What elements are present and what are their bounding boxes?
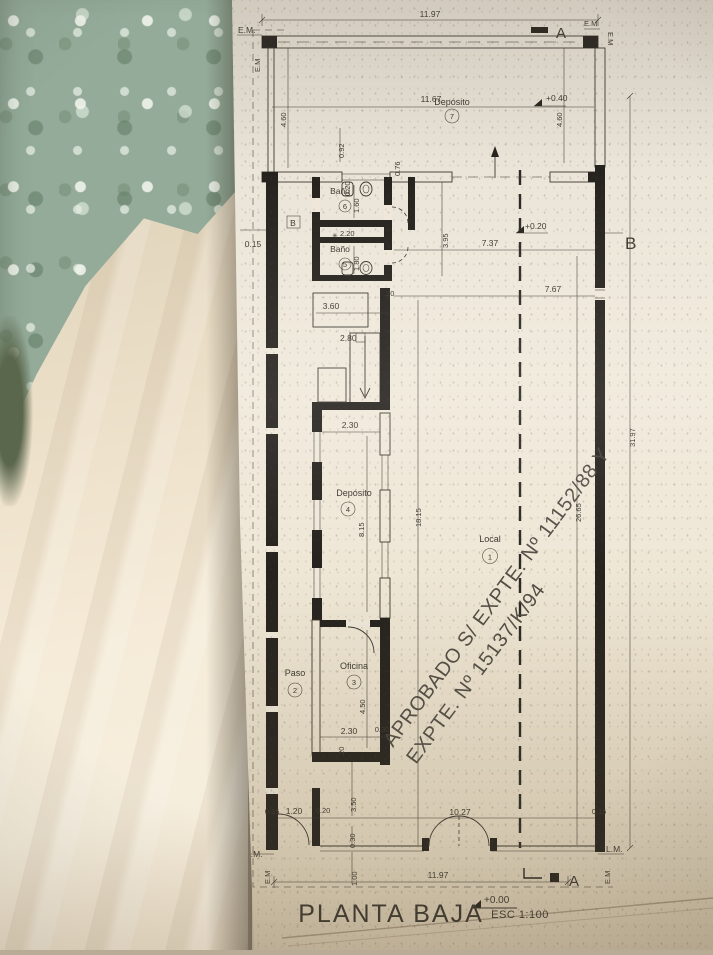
room-deposito7-label: Depósito <box>434 97 470 107</box>
dim-bano5-width: 1.80 <box>352 256 361 271</box>
dim-stair-run: 3.60 <box>323 301 340 311</box>
scale-label: ESC 1:100 <box>491 909 549 921</box>
dim-460-right: 4.60 <box>555 112 564 127</box>
dim-460-left: 4.60 <box>279 112 288 127</box>
dim-oficina-width: 2.30 <box>341 726 358 736</box>
floor-plan-drawing: E.M. E.M E.M E.M A 11.97 11.67 0.92 0.20… <box>226 0 713 950</box>
dim-jog-092: 0.92 <box>337 143 346 158</box>
right-wall-upper <box>595 48 605 167</box>
section-a-bottom-label: A <box>569 873 579 890</box>
room-deposito4-label: Depósito <box>336 488 372 498</box>
dim-local-width-mid: 7.67 <box>545 284 562 294</box>
dim-bano6-width: 1.60 <box>352 198 361 213</box>
dimension-lines <box>237 14 633 888</box>
dim-total-depth: 31.97 <box>628 428 637 447</box>
section-mark-a-top <box>531 27 548 33</box>
photograph: E.M. E.M E.M E.M A 11.97 11.67 0.92 0.20… <box>0 0 713 950</box>
dim-hall-076: 0.76 <box>393 161 402 176</box>
section-a-top-label: A <box>556 25 566 42</box>
dim-oficina-depth: 4.50 <box>358 699 367 714</box>
room-bano6-label: Baño <box>330 186 350 196</box>
corridor-inner-wall <box>312 410 322 755</box>
dim-deposito4-width: 2.30 <box>342 420 359 430</box>
oficina-walls <box>312 620 390 762</box>
dim-local-width-upper: 7.37 <box>482 238 499 248</box>
marker-em-bottom-left: E.M <box>263 871 272 884</box>
top-facade-wall <box>262 36 598 48</box>
room-paso2-label: Paso <box>285 668 306 678</box>
dim-local-depth: 18.15 <box>414 508 423 527</box>
level-zero-label: +0.00 <box>484 895 510 906</box>
paper-sheet: E.M. E.M E.M E.M A 11.97 11.67 0.92 0.20… <box>226 0 713 950</box>
dim-front-left-offset: 0.15 <box>265 807 280 816</box>
section-mark-a-bottom <box>524 868 559 882</box>
dim-front-wall: 0.30 <box>348 833 357 848</box>
background-dark-fold <box>0 316 34 506</box>
dim-left-offset: 0.15 <box>245 239 262 249</box>
section-b-right-label: B <box>625 234 636 253</box>
dim-shaft-220: 2.20 <box>340 229 355 238</box>
marker-em-top-right: E.M <box>584 19 597 28</box>
level-upper-label: +0.40 <box>546 93 568 103</box>
shaft-star-symbol: ✳ <box>332 232 338 240</box>
marker-em-bottom-right: E.M <box>603 871 612 884</box>
left-outer-wall <box>266 172 278 850</box>
direction-up-arrow <box>491 146 499 178</box>
dim-front-door: 1.20 <box>286 806 303 816</box>
dim-bano-depth: 3.95 <box>441 233 450 248</box>
room-local1-number: 1 <box>488 553 492 562</box>
room-deposito7-number: 7 <box>450 112 454 121</box>
room-local1-label: Local <box>479 534 501 544</box>
dim-stair-width: 2.80 <box>340 333 357 343</box>
approval-stamp: APROBADO S/ EXPTE. Nº 11152/88 Y EXPTE. … <box>379 444 614 768</box>
room-paso2-number: 2 <box>293 686 297 695</box>
marker-lm-right: L.M. <box>606 844 623 854</box>
room-oficina3-number: 3 <box>352 678 356 687</box>
dim-bottom-width: 11.97 <box>428 870 449 880</box>
right-outer-wall <box>595 165 605 852</box>
room-oficina3-label: Oficina <box>340 661 368 671</box>
plan-title: PLANTA BAJA <box>298 900 484 928</box>
lot-boundary-dashed <box>253 30 613 887</box>
room-bano6-number: 6 <box>343 202 347 211</box>
dim-wall-20-oficina: .20 <box>337 747 346 757</box>
dim-front-pier: 0.20 <box>316 806 331 815</box>
room-deposito4-number: 4 <box>346 505 350 514</box>
level-mid-label: +0.20 <box>525 221 547 231</box>
dim-front-right-offset: 0.15 <box>592 807 607 816</box>
room-bano5-number: 5 <box>343 260 347 269</box>
dim-wall-20-stair: .20 <box>384 289 394 298</box>
dim-deposito4-depth: 8.15 <box>357 522 366 537</box>
dim-top-width: 11.97 <box>420 9 441 19</box>
stamp-line1: APROBADO S/ EXPTE. Nº 11152/88 Y <box>379 444 614 751</box>
marker-em-top-left: E.M. <box>238 25 255 35</box>
marker-em-top-right-rotated: E.M <box>606 32 615 45</box>
dim-front-setback: 3.50 <box>349 797 358 812</box>
dim-front-opening: 10.27 <box>449 807 471 817</box>
partition-wall-local <box>380 413 390 765</box>
section-b-left-label: B <box>290 218 296 228</box>
left-wall-upper <box>268 48 274 172</box>
marker-em-top-left-rotated: E.M <box>253 59 262 72</box>
dim-front-margin: 1.00 <box>350 871 359 886</box>
room-bano5-label: Baño <box>330 244 350 254</box>
storefront <box>278 788 595 851</box>
